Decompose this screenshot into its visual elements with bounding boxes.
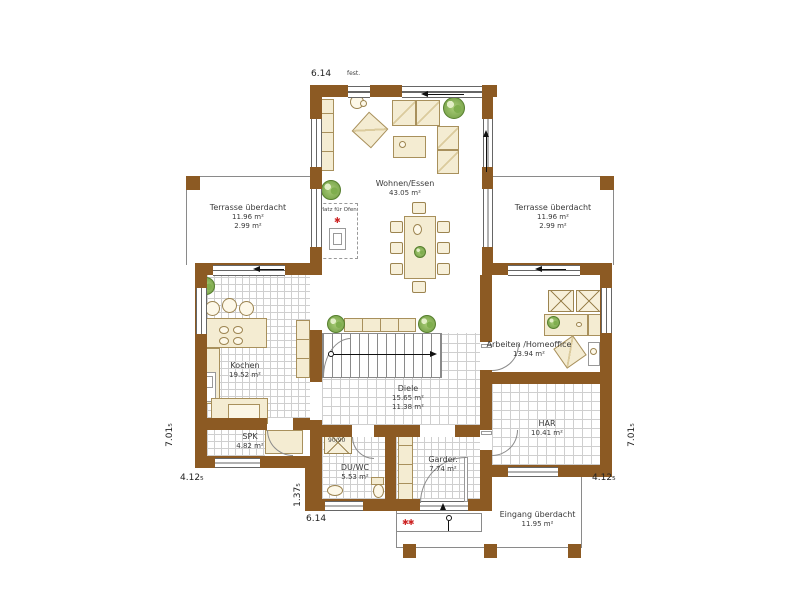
office-cabinet <box>548 290 574 312</box>
room-area: 19.52 m² <box>213 371 277 380</box>
window-sliding <box>402 86 482 98</box>
window <box>483 119 493 167</box>
wall-segment <box>482 167 493 189</box>
room-area: 4.82 m² <box>222 442 278 451</box>
dimension-right-height: 7.01₅ <box>627 415 637 455</box>
porch-edge-left <box>396 511 397 548</box>
entrance-step-line <box>396 513 482 514</box>
wc-bowl <box>373 484 384 498</box>
hob-burner <box>233 326 243 334</box>
window <box>508 467 558 477</box>
room-label-spk: SPK 4.82 m² <box>222 432 278 451</box>
room-label-diele: Diele 15.65 m² 11.38 m² <box>368 384 448 413</box>
room-area: 10.41 m² <box>512 429 582 438</box>
room-name: Eingang überdacht <box>490 510 585 520</box>
dimension-left-terrace-depth: 4.12₅ <box>180 473 204 483</box>
room-name: Arbeiten /Homeoffice <box>483 340 575 350</box>
room-area: 15.65 m² <box>368 394 448 403</box>
entrance-walk-line <box>448 521 449 531</box>
wall-diele-south <box>374 425 420 437</box>
tv-wall-unit <box>321 99 334 171</box>
room-name: Diele <box>368 384 448 394</box>
desk-mouse <box>576 322 582 327</box>
wall-diele-east <box>480 275 492 342</box>
entrance-step-line <box>396 531 482 532</box>
armchair <box>352 112 389 149</box>
wall-segment <box>482 85 497 97</box>
right-terrace-edge-top <box>490 176 614 177</box>
room-area: 11.96 m² <box>495 213 611 222</box>
plant-icon <box>327 315 345 333</box>
room-name: Terrasse überdacht <box>495 203 611 213</box>
room-label-duwc: DU/WC 5.53 m² <box>326 463 384 482</box>
dimension-bottom-width: 6.14 <box>306 514 326 524</box>
dimension-notch-depth: 1.37₅ <box>293 475 303 515</box>
wall-spk-north <box>207 418 267 430</box>
room-area: 5.53 m² <box>326 473 384 482</box>
dining-chair <box>412 202 426 214</box>
room-label-eingang: Eingang überdacht 11.95 m² <box>490 510 585 529</box>
printer-knob <box>590 348 597 355</box>
plant-icon <box>443 97 465 119</box>
wall-segment <box>482 97 493 119</box>
hob-burner <box>219 326 229 334</box>
sofa-seat <box>437 150 459 174</box>
wall-garderobe-east <box>480 450 492 511</box>
wall-segment <box>310 85 348 97</box>
bar-stool <box>205 301 220 316</box>
wall-kitchen-diele <box>310 330 322 382</box>
wall-segment <box>310 97 322 119</box>
oven-symbol-inner <box>333 233 342 245</box>
room-name: DU/WC <box>326 463 384 473</box>
room-area2: 2.99 m² <box>190 222 306 231</box>
plant-icon <box>414 246 426 258</box>
slide-arrow-line <box>260 269 284 270</box>
room-area: 43.05 m² <box>350 189 460 198</box>
left-terrace-edge-top <box>186 176 310 177</box>
floor-plan: Platz für Ofen ✱ <box>0 0 800 600</box>
room-label-garderobe: Garder. 7.74 m² <box>414 455 472 474</box>
slide-arrow-line <box>542 269 566 270</box>
stair-direction-arrow-icon <box>430 351 437 357</box>
room-name: Wohnen/Essen <box>350 179 460 189</box>
slide-arrow-icon <box>421 91 428 97</box>
room-area: 11.96 m² <box>190 213 306 222</box>
porch-pillar <box>403 544 416 558</box>
shower-size-label: 90/90 <box>328 437 345 444</box>
room-area: 11.95 m² <box>490 520 585 529</box>
slide-arrow-line <box>486 136 487 172</box>
terrace-door-left <box>311 189 322 247</box>
dimension-top-width: 6.14 <box>311 69 331 79</box>
right-terrace-post <box>600 176 614 190</box>
window-sliding <box>213 265 285 276</box>
bar-stool <box>222 298 237 313</box>
sideboard <box>344 318 416 332</box>
room-area2: 11.38 m² <box>368 403 448 412</box>
coffee-table <box>393 136 426 158</box>
room-label-har: HAR 10.41 m² <box>512 419 582 438</box>
oven-space-note: Platz für Ofen <box>319 207 357 213</box>
door-leaf-har <box>481 431 492 435</box>
left-terrace-post <box>186 176 200 190</box>
room-area: 7.74 m² <box>414 465 472 474</box>
room-name: Kochen <box>213 361 277 371</box>
coffee-table-decor <box>399 141 406 148</box>
red-marker-single: ✱ <box>334 216 340 225</box>
wall-kitchen-diele <box>310 420 322 456</box>
bar-stool <box>239 301 254 316</box>
dining-chair <box>390 263 403 275</box>
room-name: Terrasse überdacht <box>190 203 306 213</box>
red-marker-double: ✱✱ <box>402 518 413 527</box>
room-label-terrasse-links: Terrasse überdacht 11.96 m² 2.99 m² <box>190 203 306 232</box>
slide-arrow-icon <box>483 130 489 137</box>
porch-pillar <box>568 544 581 558</box>
room-area: 13.94 m² <box>483 350 575 359</box>
plant-icon <box>321 180 341 200</box>
hob-burner <box>219 337 229 345</box>
washbasin <box>327 485 343 496</box>
dining-chair <box>437 263 450 275</box>
room-name: SPK <box>222 432 278 442</box>
slide-arrow-line <box>428 94 464 95</box>
wall-segment <box>370 85 402 97</box>
entrance-arrow-icon <box>440 503 446 510</box>
window-fixed <box>348 86 370 98</box>
dining-chair <box>412 281 426 293</box>
wall-segment <box>310 167 322 189</box>
dining-table-bowl <box>413 224 422 235</box>
wall-segment <box>310 247 322 275</box>
wall-duwc-garderobe <box>385 437 396 499</box>
room-label-kochen: Kochen 19.52 m² <box>213 361 277 380</box>
sofa-seat <box>416 100 440 126</box>
plant-icon <box>418 315 436 333</box>
entrance-walk-symbol <box>446 515 452 521</box>
window-sliding <box>508 265 580 276</box>
dining-chair <box>390 242 403 254</box>
plant-icon <box>547 316 560 329</box>
room-label-arbeiten: Arbeiten /Homeoffice 13.94 m² <box>483 340 575 359</box>
window <box>215 458 260 468</box>
terrace-door-right <box>483 189 493 247</box>
wall-diele-east <box>480 370 492 430</box>
dining-chair <box>437 221 450 233</box>
wardrobe-cabinet <box>398 433 413 503</box>
wall-spk-north <box>293 418 310 430</box>
porch-pillar <box>484 544 497 558</box>
wall-office-har <box>492 372 600 384</box>
wall-entry-left <box>388 499 420 511</box>
dining-chair <box>437 242 450 254</box>
sofa-seat <box>392 100 416 126</box>
room-area2: 2.99 m² <box>495 222 611 231</box>
fixed-glazing-label: fest. <box>347 70 360 77</box>
wall-diele-south <box>455 425 480 437</box>
hob-burner <box>233 337 243 345</box>
kitchen-tall-unit <box>296 320 310 378</box>
slide-arrow-icon <box>535 266 542 272</box>
room-label-terrasse-rechts: Terrasse überdacht 11.96 m² 2.99 m² <box>495 203 611 232</box>
dimension-left-height: 7.01₅ <box>165 415 175 455</box>
entrance-step-edge <box>481 513 482 532</box>
side-table-lamp <box>360 100 367 107</box>
office-cabinet <box>576 290 602 312</box>
dimension-right-terrace-depth: 4.12₅ <box>592 473 616 483</box>
slide-arrow-icon <box>253 266 260 272</box>
wall-diele-south <box>322 425 352 437</box>
sofa-seat <box>437 126 459 150</box>
window <box>601 288 612 333</box>
room-name: HAR <box>512 419 582 429</box>
dining-chair <box>390 221 403 233</box>
window <box>311 119 322 167</box>
stair-walkline <box>334 354 430 355</box>
room-label-wohnen-essen: Wohnen/Essen 43.05 m² <box>350 179 460 198</box>
room-name: Garder. <box>414 455 472 465</box>
window <box>196 288 207 334</box>
window <box>325 501 363 511</box>
